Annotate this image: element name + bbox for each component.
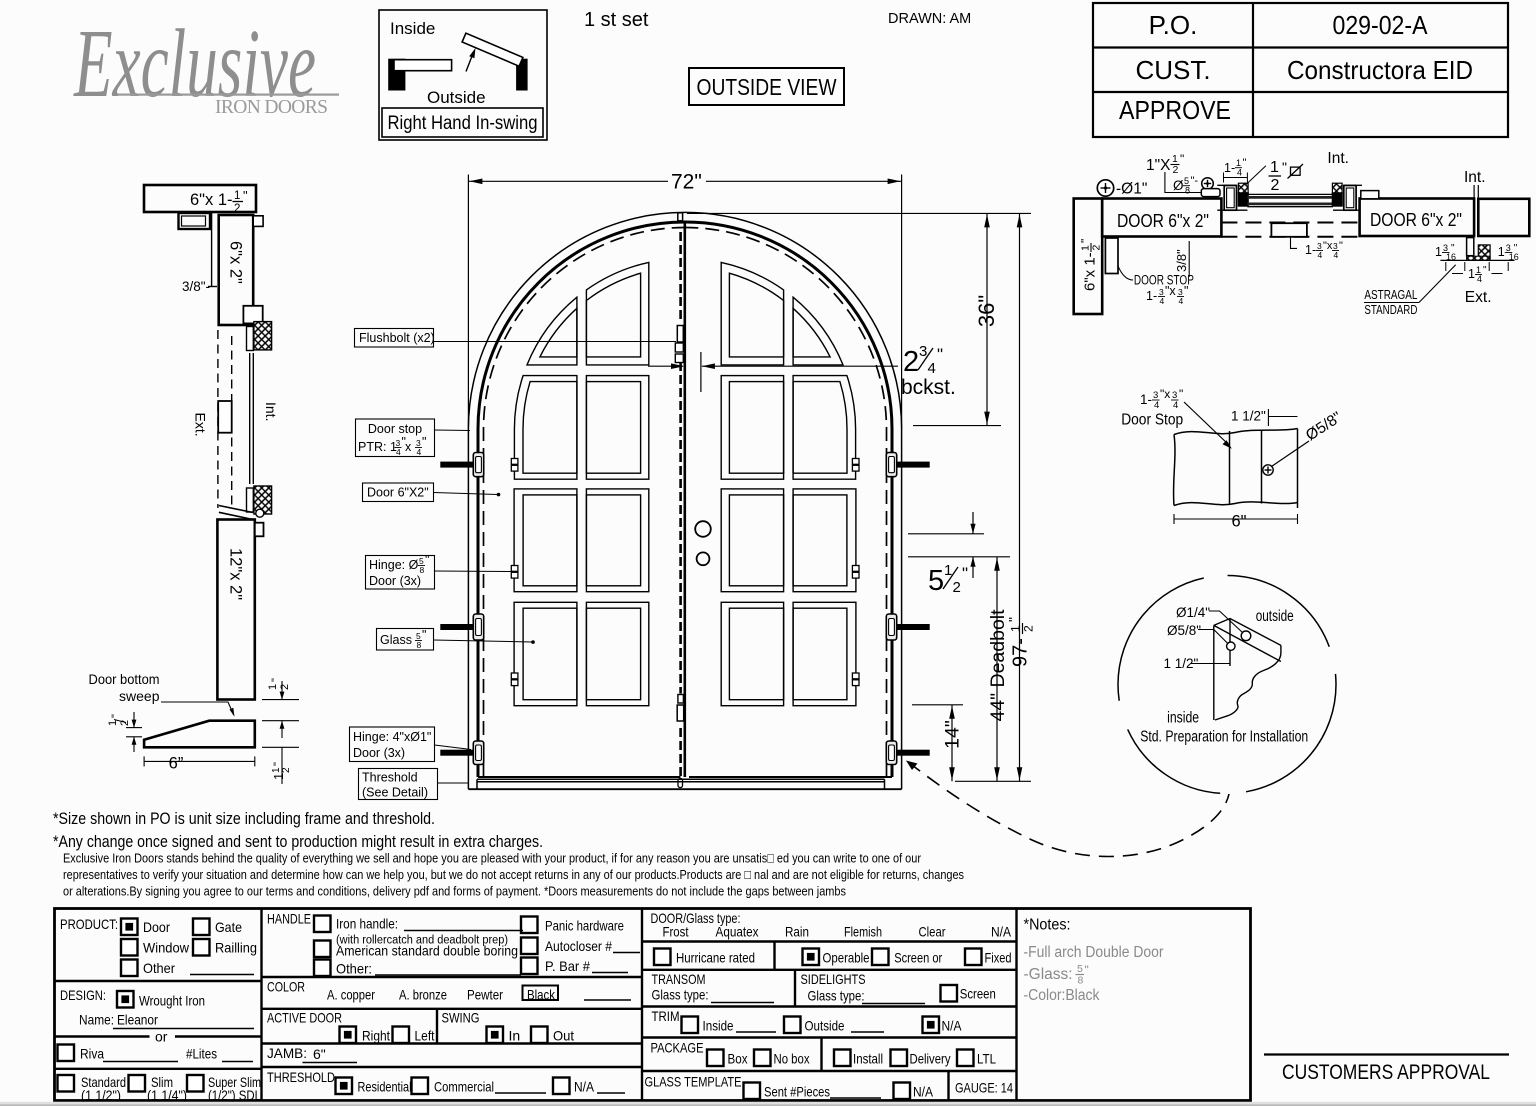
svg-text:(1 1/2"): (1 1/2"): [81, 1087, 121, 1103]
svg-text:JAMB:: JAMB:: [267, 1045, 307, 1061]
svg-text:HANDLE: HANDLE: [267, 911, 311, 927]
svg-text:4: 4: [1154, 400, 1159, 411]
svg-text:COLOR: COLOR: [267, 979, 305, 995]
svg-text:N/A: N/A: [574, 1079, 595, 1095]
svg-text:Riva: Riva: [80, 1046, 104, 1062]
svg-text:Door Stop: Door Stop: [1121, 412, 1183, 429]
svg-text:SIDELIGHTS: SIDELIGHTS: [801, 971, 866, 987]
svg-text:Right Hand In-swing: Right Hand In-swing: [388, 113, 538, 134]
svg-text:Glass type:: Glass type:: [652, 987, 709, 1003]
svg-text:1: 1: [1498, 245, 1505, 259]
svg-text:1-: 1-: [1305, 243, 1316, 257]
svg-text:3/8": 3/8": [1174, 249, 1189, 272]
svg-text:Threshold: Threshold: [362, 771, 418, 785]
svg-text:4: 4: [1237, 168, 1242, 178]
svg-text:(See Detail): (See Detail): [362, 786, 428, 800]
svg-text:Ext.: Ext.: [1465, 289, 1492, 306]
svg-text:x: x: [405, 440, 412, 454]
svg-text:1-: 1-: [1146, 289, 1157, 303]
svg-text:": ": [1483, 265, 1487, 276]
svg-text:Hurricane rated: Hurricane rated: [676, 950, 755, 966]
svg-text:1-: 1-: [1140, 392, 1152, 407]
svg-text:GAUGE: 14: GAUGE: 14: [955, 1080, 1013, 1096]
svg-text:DOOR 6"x 2": DOOR 6"x 2": [1117, 210, 1209, 231]
svg-text:": ": [270, 678, 282, 682]
svg-text:-Glass:: -Glass:: [1024, 966, 1073, 983]
svg-text:-Full arch Double Door: -Full arch Double Door: [1024, 944, 1164, 961]
svg-text:6”: 6”: [169, 755, 184, 773]
svg-text:(1/2") SDL: (1/2") SDL: [208, 1087, 261, 1103]
svg-text:Pewter: Pewter: [467, 987, 503, 1003]
svg-text:THRESHOLD: THRESHOLD: [267, 1069, 335, 1085]
svg-text:1: 1: [1435, 245, 1442, 259]
svg-text:APPROVE: APPROVE: [1119, 95, 1231, 125]
svg-text:Iron handle:: Iron handle:: [336, 916, 398, 932]
svg-text:12"x 2": 12"x 2": [227, 548, 245, 600]
svg-text:Glass: Glass: [380, 633, 412, 647]
svg-text:Constructora EID: Constructora EID: [1287, 55, 1473, 85]
svg-text:36": 36": [974, 295, 999, 327]
svg-text:A. copper: A. copper: [327, 987, 375, 1003]
svg-text:Out: Out: [553, 1028, 574, 1044]
svg-text:Sent #Pieces: Sent #Pieces: [764, 1084, 830, 1100]
svg-text:Fixed: Fixed: [985, 950, 1012, 966]
svg-text:4: 4: [1160, 296, 1165, 306]
svg-text:inside: inside: [1167, 710, 1199, 727]
svg-text:1 1/2": 1 1/2": [1231, 409, 1266, 424]
svg-text:"-: "-: [1191, 175, 1199, 187]
svg-text:2: 2: [281, 767, 292, 773]
svg-text:3/8"-: 3/8"-: [182, 279, 210, 294]
svg-text:Commercial: Commercial: [434, 1079, 494, 1095]
svg-text:STANDARD: STANDARD: [1364, 302, 1417, 317]
svg-text:": ": [937, 345, 943, 364]
svg-text:Left: Left: [415, 1028, 435, 1044]
svg-text:": ": [1180, 152, 1184, 166]
svg-text:Ø5/8": Ø5/8": [1167, 623, 1201, 638]
svg-text:Std. Preparation for Installat: Std. Preparation for Installation: [1140, 729, 1308, 746]
svg-text:029-02-A: 029-02-A: [1333, 10, 1429, 40]
svg-text:*Notes:: *Notes:: [1024, 917, 1071, 934]
svg-text:DRAWN: AM: DRAWN: AM: [888, 11, 971, 27]
svg-text:6": 6": [1231, 513, 1246, 531]
svg-text:N/A: N/A: [991, 924, 1012, 940]
svg-text:2: 2: [1173, 164, 1179, 176]
svg-text:Screen: Screen: [960, 986, 996, 1002]
svg-text:Ext.: Ext.: [193, 413, 209, 437]
svg-text:A. bronze: A. bronze: [399, 987, 447, 1003]
svg-text:": ": [962, 564, 968, 583]
svg-text:Autocloser #: Autocloser #: [545, 938, 612, 954]
svg-text:2: 2: [1091, 245, 1103, 251]
svg-text:Ø: Ø: [1173, 178, 1184, 193]
svg-text:Door stop: Door stop: [368, 422, 422, 436]
svg-text:ACTIVE DOOR: ACTIVE DOOR: [267, 1010, 342, 1026]
svg-text:(1 1/4"): (1 1/4"): [147, 1087, 187, 1103]
svg-text:"x: "x: [1160, 387, 1170, 401]
svg-text:Int.: Int.: [1464, 169, 1486, 186]
svg-text:Residential: Residential: [358, 1079, 412, 1095]
svg-text:"x: "x: [1323, 240, 1333, 252]
svg-text:1: 1: [267, 684, 279, 690]
svg-text:Install: Install: [853, 1051, 883, 1067]
svg-text:1-: 1-: [1224, 161, 1235, 175]
svg-text:2: 2: [903, 346, 919, 378]
svg-text:PACKAGE: PACKAGE: [651, 1040, 704, 1056]
svg-text:14": 14": [942, 720, 964, 749]
svg-text:1: 1: [1009, 625, 1023, 632]
svg-text:outside: outside: [1256, 608, 1294, 625]
svg-text:In: In: [509, 1028, 521, 1044]
svg-text:5: 5: [928, 565, 944, 597]
svg-text:American standard double borin: American standard double boring: [336, 943, 518, 959]
svg-text:Frost: Frost: [663, 924, 689, 940]
svg-text:Name:: Name:: [79, 1012, 114, 1028]
svg-text:*Any change once signed and se: *Any change once signed and sent to prod…: [53, 833, 543, 851]
svg-text:P. Bar #: P. Bar #: [545, 958, 590, 974]
svg-text:": ": [1085, 963, 1089, 977]
svg-text:Glass type:: Glass type:: [808, 988, 865, 1004]
svg-text:": ": [1451, 243, 1455, 254]
svg-text:1: 1: [1270, 159, 1279, 176]
svg-text:2: 2: [1022, 625, 1036, 632]
svg-text:ASTRAGAL: ASTRAGAL: [1364, 287, 1417, 302]
svg-text:Door: Door: [143, 919, 170, 935]
svg-text:4: 4: [1173, 400, 1178, 411]
svg-text:5: 5: [1077, 963, 1083, 975]
svg-text:Door 6"X2": Door 6"X2": [367, 486, 429, 500]
svg-text:2: 2: [279, 684, 291, 690]
svg-text:": ": [272, 762, 284, 766]
svg-text:Ø1/4": Ø1/4": [1176, 605, 1210, 620]
svg-text:SWING: SWING: [442, 1010, 480, 1026]
svg-text:2: 2: [234, 203, 240, 215]
svg-text:or: or: [155, 1029, 168, 1045]
svg-text:4: 4: [417, 447, 422, 457]
svg-text:PTR: 1: PTR: 1: [358, 440, 397, 454]
svg-text:Rain: Rain: [785, 924, 809, 940]
svg-text:Gate: Gate: [215, 919, 242, 935]
svg-text:4: 4: [1477, 274, 1482, 284]
svg-text:": ": [1179, 387, 1183, 401]
svg-text:1: 1: [1236, 158, 1241, 168]
svg-text:Clear: Clear: [919, 924, 946, 940]
svg-text:Door (3x): Door (3x): [353, 746, 405, 760]
svg-text:4: 4: [396, 447, 401, 457]
svg-text:": ": [422, 628, 426, 642]
svg-text:Door bottom: Door bottom: [89, 671, 160, 687]
svg-text:2: 2: [1271, 177, 1280, 194]
svg-text:8: 8: [1185, 186, 1190, 196]
svg-text:Inside: Inside: [390, 19, 435, 38]
svg-text:": ": [1282, 159, 1287, 175]
svg-text:Flushbolt (x2): Flushbolt (x2): [359, 331, 435, 345]
svg-text:Exclusive Iron Doors stands be: Exclusive Iron Doors stands behind the q…: [63, 851, 921, 866]
svg-text:Wrought Iron: Wrought Iron: [139, 993, 205, 1009]
svg-text:Window: Window: [143, 940, 190, 956]
svg-text:4: 4: [1318, 250, 1323, 260]
svg-text:1"X: 1"X: [1146, 157, 1171, 174]
svg-text:Other: Other: [143, 960, 175, 976]
svg-text:No box: No box: [774, 1051, 810, 1067]
svg-text:Delivery: Delivery: [910, 1051, 951, 1067]
svg-text:8: 8: [1078, 975, 1084, 987]
svg-text:97-: 97-: [1010, 638, 1032, 667]
svg-text:Outside: Outside: [805, 1018, 845, 1034]
svg-text:IRON DOORS: IRON DOORS: [215, 97, 328, 118]
svg-text:Ø5/8": Ø5/8": [1303, 409, 1345, 445]
svg-text:": ": [422, 435, 426, 449]
svg-text:Int.: Int.: [1327, 150, 1349, 167]
svg-text:44" Deadbolt: 44" Deadbolt: [987, 609, 1009, 722]
svg-text:Hinge: Ø: Hinge: Ø: [369, 558, 419, 572]
svg-text:OUTSIDE VIEW: OUTSIDE VIEW: [697, 74, 837, 100]
svg-text:-Color:Black: -Color:Black: [1024, 987, 1100, 1004]
svg-text:Panic hardware: Panic hardware: [545, 918, 624, 934]
svg-text:": ": [243, 188, 248, 203]
svg-text:*Size shown in PO is unit size: *Size shown in PO is unit size including…: [53, 810, 435, 828]
svg-text:DOOR 6"x 2": DOOR 6"x 2": [1370, 209, 1462, 230]
svg-text:CUST.: CUST.: [1135, 55, 1210, 85]
svg-text:Operable: Operable: [823, 950, 870, 966]
svg-text:Railling: Railling: [215, 940, 257, 956]
svg-text:": ": [1184, 284, 1188, 298]
svg-text:Door (3x): Door (3x): [369, 574, 421, 588]
svg-text:Hinge: 4"xØ1": Hinge: 4"xØ1": [353, 730, 431, 744]
svg-text:": ": [110, 714, 122, 718]
svg-text:TRANSOM: TRANSOM: [652, 971, 706, 987]
svg-text:": ": [1514, 243, 1518, 254]
svg-text:-Ø1": -Ø1": [1116, 181, 1147, 198]
svg-text:Other:: Other:: [336, 961, 372, 977]
svg-text:4: 4: [1179, 296, 1184, 306]
svg-text:bckst.: bckst.: [901, 376, 956, 399]
svg-text:1: 1: [1468, 267, 1475, 281]
svg-text:Int.: Int.: [263, 402, 279, 421]
svg-text:Inside: Inside: [703, 1018, 734, 1034]
svg-text:TRIM: TRIM: [652, 1008, 680, 1024]
svg-text:4: 4: [1334, 250, 1339, 260]
svg-text:6"x 2": 6"x 2": [227, 241, 245, 284]
svg-text:Box: Box: [728, 1051, 748, 1067]
svg-text:sweep: sweep: [119, 688, 160, 704]
svg-text:LTL: LTL: [977, 1051, 996, 1067]
svg-text:72": 72": [671, 171, 702, 194]
svg-text:1 st set: 1 st set: [584, 9, 649, 31]
svg-text:6"x 1-: 6"x 1-: [1082, 252, 1099, 291]
svg-text:6"x 1-: 6"x 1-: [190, 191, 233, 209]
svg-text:GLASS TEMPLATE: GLASS TEMPLATE: [645, 1074, 742, 1090]
svg-text:6": 6": [313, 1046, 326, 1062]
svg-text:": ": [1243, 157, 1247, 169]
svg-text:1: 1: [234, 190, 240, 202]
svg-text:representatives to verify your: representatives to verify your situation…: [63, 867, 964, 882]
svg-text:#Lites: #Lites: [186, 1046, 217, 1062]
svg-text:CUSTOMERS APPROVAL: CUSTOMERS APPROVAL: [1282, 1061, 1490, 1084]
svg-text:Outside: Outside: [427, 88, 486, 107]
svg-text:5: 5: [1184, 176, 1189, 186]
svg-text:Aquatex: Aquatex: [716, 924, 759, 940]
svg-text:N/A: N/A: [913, 1084, 934, 1100]
svg-text:": ": [1339, 240, 1343, 252]
svg-text:or alterations.By signing you: or alterations.By signing you agree to o…: [63, 884, 846, 899]
svg-text:": ": [425, 553, 429, 567]
svg-text:2: 2: [953, 579, 961, 596]
svg-text:": ": [1079, 239, 1093, 243]
svg-text:Right: Right: [362, 1028, 390, 1044]
svg-text:"x: "x: [1165, 284, 1176, 298]
svg-text:Flemish: Flemish: [844, 924, 882, 940]
svg-text:DESIGN:: DESIGN:: [60, 987, 106, 1003]
svg-text:4: 4: [928, 360, 936, 377]
svg-text:Eleanor: Eleanor: [117, 1012, 158, 1028]
svg-text:8: 8: [417, 640, 422, 650]
svg-text:Screen or: Screen or: [894, 950, 942, 966]
svg-text:N/A: N/A: [942, 1018, 963, 1034]
svg-text:P.O.: P.O.: [1149, 10, 1198, 40]
svg-text:PRODUCT:: PRODUCT:: [60, 916, 118, 932]
